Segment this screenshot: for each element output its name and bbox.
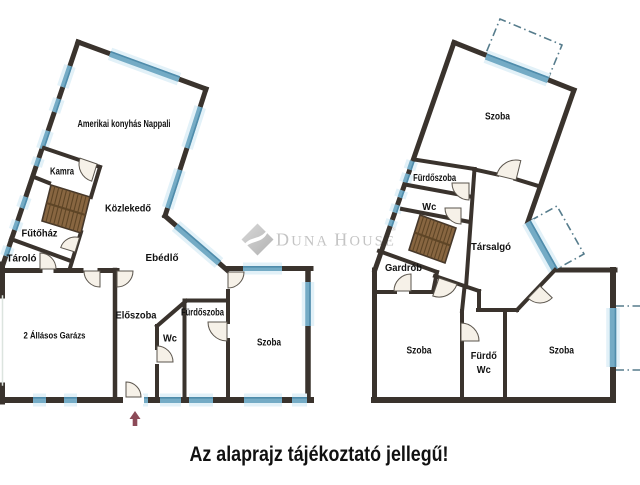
svg-text:Wc: Wc <box>422 202 436 213</box>
svg-text:2 Állásos Garázs: 2 Állásos Garázs <box>24 331 86 341</box>
svg-text:Fürdőszoba: Fürdőszoba <box>413 173 456 184</box>
svg-text:Wc: Wc <box>163 334 177 345</box>
svg-text:Fürdőszoba: Fürdőszoba <box>181 308 224 319</box>
svg-text:Wc: Wc <box>477 365 491 376</box>
svg-text:Előszoba: Előszoba <box>116 311 157 322</box>
svg-text:Társalgó: Társalgó <box>471 242 511 253</box>
svg-text:Szoba: Szoba <box>549 346 574 357</box>
svg-text:Szoba: Szoba <box>257 338 281 349</box>
svg-text:Szoba: Szoba <box>485 112 510 123</box>
svg-text:Fürdő: Fürdő <box>471 351 497 362</box>
svg-text:Fűtőház: Fűtőház <box>22 229 58 240</box>
svg-text:Amerikai konyhás Nappali: Amerikai konyhás Nappali <box>78 119 171 130</box>
svg-text:Szoba: Szoba <box>407 346 432 357</box>
svg-text:Kamra: Kamra <box>50 167 74 178</box>
svg-text:Közlekedő: Közlekedő <box>105 204 151 215</box>
svg-text:Ebédlő: Ebédlő <box>146 253 179 264</box>
svg-text:Tároló: Tároló <box>7 254 37 265</box>
svg-text:Az alaprajz tájékoztató jelleg: Az alaprajz tájékoztató jellegű! <box>190 443 449 466</box>
svg-text:Gardrób: Gardrób <box>385 263 422 274</box>
